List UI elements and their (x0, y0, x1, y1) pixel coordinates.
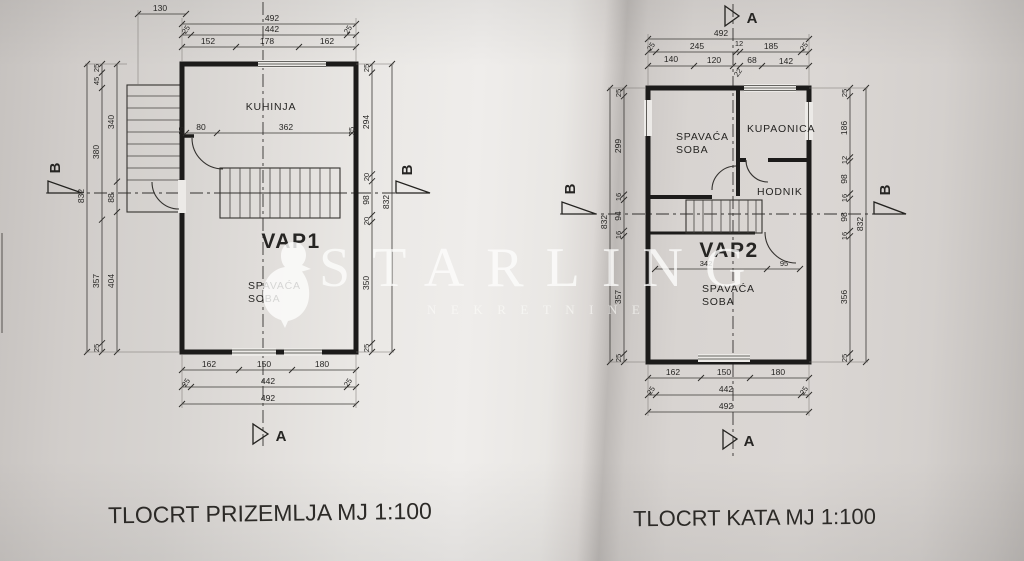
dim-label: 16 (840, 194, 849, 202)
unit-label-vap1: VAP1 (261, 230, 320, 253)
dim-label: 20 (362, 173, 371, 181)
dim-label: 150 (257, 359, 271, 369)
section-letter-a: A (744, 433, 755, 450)
room-label-bedroom-b1: SPAVAĆA (702, 282, 755, 295)
dim-label: 142 (779, 56, 793, 66)
dim-label: 180 (315, 359, 329, 369)
dim-label: 404 (106, 274, 116, 288)
dim-label: 16 (840, 232, 849, 240)
dim-interior-width: 25 80 362 25 (177, 122, 356, 136)
ground-floor-plan: KUHINJA VAP1 SPAVAĆA SOBA 25 80 362 25 1… (46, 2, 430, 446)
section-marker-b-right: B (396, 164, 430, 193)
interior-stair (220, 168, 340, 218)
section-marker-b-right: B (874, 184, 906, 214)
section-letter-b: B (399, 164, 416, 175)
dim-label: 25 (614, 89, 623, 97)
section-letter-b: B (877, 184, 894, 195)
dim-label: 22 (732, 67, 744, 79)
dim-bottom: 162 150 180 25 442 25 492 (645, 364, 812, 416)
dim-label: 245 (690, 41, 704, 51)
upper-floor-plan: SPAVAĆA SOBA KUPAONICA HODNIK VAP2 SPAVA… (560, 4, 906, 458)
room-label-bedroom-b2: SOBA (702, 296, 734, 308)
dim-label: 492 (261, 393, 275, 403)
dim-label: 186 (839, 121, 849, 135)
door-arc-bath (746, 160, 768, 182)
dim-label: 68 (747, 55, 757, 65)
dim-label: 16 (614, 193, 623, 201)
dim-label: 25 (342, 24, 354, 36)
dim-label: 94 (613, 211, 623, 221)
dim-label: 362 (279, 122, 293, 132)
section-marker-a-top: A (725, 6, 758, 27)
dim-label: 185 (764, 41, 778, 51)
dim-label: 492 (265, 13, 279, 23)
dim-label: 45 (92, 77, 101, 85)
caption-upper-floor: TLOCRT KATA MJ 1:100 (633, 504, 876, 533)
dim-label: 25 (92, 64, 101, 72)
section-marker-a-bottom: A (723, 430, 755, 450)
dim-label: 25 (645, 41, 657, 53)
dim-label: 180 (771, 367, 785, 377)
dim-label: 88 (106, 193, 116, 203)
dim-label: 25 (798, 41, 810, 53)
dim-right: 25 294 20 98 20 350 25 832 (356, 61, 395, 355)
room-label-hall: HODNIK (757, 186, 803, 198)
section-letter-b: B (47, 162, 64, 173)
section-marker-a-bottom: A (253, 424, 287, 445)
interior-partitions (152, 136, 223, 209)
dim-top: 492 25 245 12 185 25 140 120 22 68 142 (645, 28, 812, 86)
dim-label: 162 (202, 359, 216, 369)
dim-top: 130 492 25 442 25 152 178 162 (135, 3, 359, 85)
dim-label: 150 (717, 367, 731, 377)
dim-label: 25 (180, 24, 192, 36)
blueprint-linework: KUHINJA VAP1 SPAVAĆA SOBA 25 80 362 25 1… (0, 0, 1024, 561)
dim-label: 16 (614, 231, 623, 239)
dim-label: 25 (347, 127, 356, 135)
dim-label: 25 (840, 89, 849, 97)
dim-label: 299 (613, 139, 623, 153)
dim-label: 350 (361, 276, 371, 290)
dim-label: 442 (261, 376, 275, 386)
dim-label: 95 (780, 259, 788, 268)
dim-label: 492 (719, 401, 733, 411)
dim-label: 98 (839, 212, 849, 222)
dim-label: 25 (362, 64, 371, 72)
dim-label: 832 (381, 195, 391, 209)
room-label-bath: KUPAONICA (747, 123, 815, 135)
dim-label: 162 (320, 36, 334, 46)
dim-label: 98 (361, 195, 371, 205)
dim-label: 25 (92, 344, 101, 352)
dim-left: 832 25 299 16 94 16 357 25 (599, 85, 646, 365)
dim-label: 442 (265, 24, 279, 34)
dim-label: 80 (196, 122, 206, 132)
room-label-bedroom-1: SPAVAĆA (248, 279, 301, 292)
dim-label: 130 (153, 3, 167, 13)
dim-label: 25 (362, 344, 371, 352)
door-arc-bedroom (712, 166, 736, 190)
dim-label: 25 (840, 354, 849, 362)
dim-label: 25 (614, 354, 623, 362)
dim-label: 492 (714, 28, 728, 38)
interior-partitions (648, 88, 809, 263)
room-label-bedroom-2: SOBA (248, 293, 280, 305)
interior-stair (686, 200, 762, 233)
dim-label: 294 (361, 115, 371, 129)
dim-label: 152 (201, 36, 215, 46)
section-letter-a: A (747, 10, 758, 27)
dim-label: 12 (735, 39, 743, 48)
door-arc-kitchen (192, 138, 223, 169)
section-marker-b-left: B (47, 162, 82, 193)
dim-right: 25 186 12 98 16 98 16 356 25 832 (809, 85, 869, 365)
dim-label: 98 (839, 174, 849, 184)
room-label-kitchen: KUHINJA (246, 101, 297, 113)
room-label-bedroom-a1: SPAVAĆA (676, 130, 729, 143)
dim-label: 340 (106, 115, 116, 129)
dim-left: 832 25 45 380 357 25 340 88 404 (76, 61, 180, 355)
dim-label: 120 (707, 55, 721, 65)
caption-ground-floor: TLOCRT PRIZEMLJA MJ 1:100 (108, 498, 432, 530)
dim-label: 357 (613, 290, 623, 304)
dim-bottom: 162 150 180 25 442 25 492 (179, 354, 359, 408)
dim-label: 178 (260, 36, 274, 46)
dim-label: 12 (840, 156, 849, 164)
dim-label: 356 (839, 290, 849, 304)
section-letter-a: A (276, 428, 287, 445)
room-label-bedroom-a2: SOBA (676, 144, 708, 156)
section-letter-b: B (562, 183, 579, 194)
dim-label: 140 (664, 54, 678, 64)
dim-label: 380 (91, 145, 101, 159)
dim-label: 162 (666, 367, 680, 377)
dim-label: 357 (91, 274, 101, 288)
section-marker-b-left: B (562, 183, 596, 214)
dim-label: 832 (855, 217, 865, 231)
door-arc-entry (152, 182, 179, 209)
dim-label: 442 (719, 384, 733, 394)
dim-label: 342 (700, 259, 713, 268)
dim-label: 832 (599, 215, 609, 229)
dim-label: 20 (362, 217, 371, 225)
dim-label: 25 (177, 127, 186, 135)
